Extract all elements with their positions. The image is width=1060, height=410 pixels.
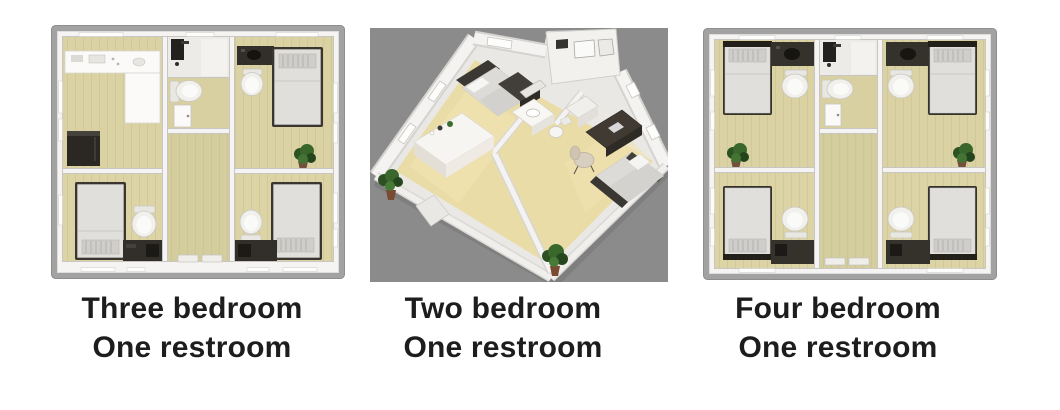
bed-icon (723, 41, 772, 115)
door-icon (178, 255, 198, 262)
bed-icon (723, 186, 772, 260)
four-bedroom-floor-plan (703, 28, 997, 280)
two-bedroom-floor-plan-image (370, 28, 668, 282)
two-bedroom-isometric-plan (370, 28, 668, 282)
caption-line-2: One restroom (356, 328, 650, 367)
toilet-icon (170, 81, 202, 103)
toilet-icon (241, 69, 263, 96)
three-bedroom-floor-plan (51, 25, 345, 279)
four-bedroom-caption: Four bedroom One restroom (691, 289, 985, 367)
toilet-icon (822, 79, 853, 99)
bed-icon (272, 47, 323, 127)
caption-line-2: One restroom (691, 328, 985, 367)
desk-counter-icon (235, 240, 277, 261)
desk-counter-icon (771, 42, 814, 66)
door-icon (202, 255, 222, 262)
desk-counter-icon (237, 46, 274, 65)
toilet-icon (782, 207, 808, 238)
toilet-icon (888, 70, 914, 98)
caption-line-1: Four bedroom (691, 289, 985, 328)
two-bedroom-caption: Two bedroom One restroom (356, 289, 650, 367)
bed-icon (928, 186, 977, 260)
desk-counter-icon (886, 42, 930, 66)
bed-icon (928, 41, 977, 115)
caption-line-1: Two bedroom (356, 289, 650, 328)
caption-line-2: One restroom (45, 328, 339, 367)
three-bedroom-floor-plan-image (51, 25, 345, 279)
toilet-icon (888, 207, 914, 238)
fridge-icon (67, 131, 100, 166)
toilet-icon (132, 206, 156, 237)
window-icon (574, 40, 595, 58)
door-icon (825, 104, 841, 126)
entry-alcove (546, 29, 620, 84)
desk-counter-icon (771, 240, 814, 264)
toilet-icon (240, 210, 262, 241)
window-icon (598, 39, 614, 56)
door-icon (174, 105, 191, 127)
bed-icon (75, 182, 126, 260)
vent-icon (556, 39, 568, 49)
desk-counter-icon (886, 240, 930, 264)
caption-line-1: Three bedroom (45, 289, 339, 328)
three-bedroom-caption: Three bedroom One restroom (45, 289, 339, 367)
door-icon (849, 258, 869, 265)
desk-counter-icon (123, 240, 162, 261)
toilet-icon (782, 70, 808, 98)
bed-icon (271, 182, 322, 260)
door-icon (825, 258, 845, 265)
four-bedroom-floor-plan-image (703, 28, 997, 280)
